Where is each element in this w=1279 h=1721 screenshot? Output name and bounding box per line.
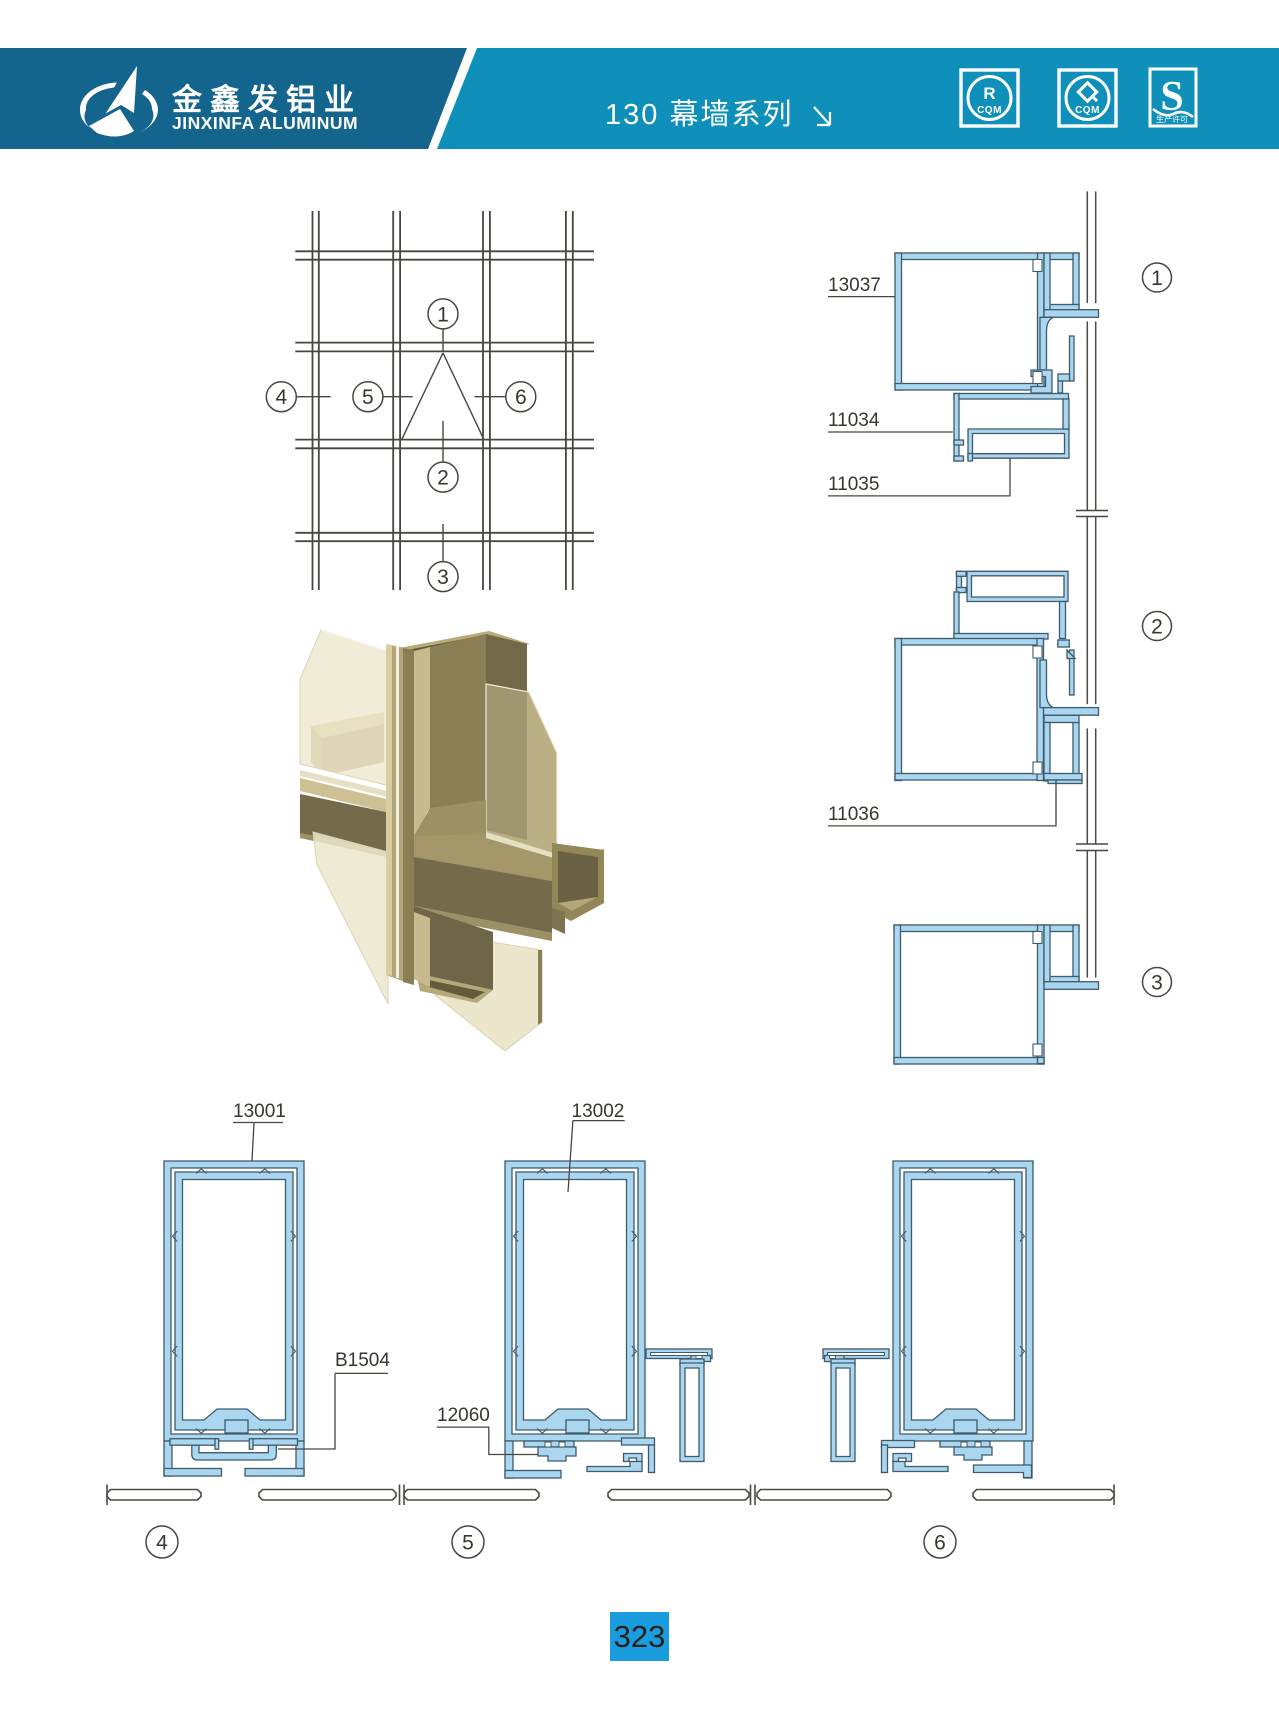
svg-text:11035: 11035 xyxy=(828,474,879,495)
svg-text:323: 323 xyxy=(614,1619,666,1654)
svg-text:4: 4 xyxy=(275,386,287,409)
svg-text:CQM: CQM xyxy=(1075,105,1100,116)
svg-text:2: 2 xyxy=(437,467,449,490)
svg-text:R: R xyxy=(983,84,995,103)
svg-text:5: 5 xyxy=(362,386,374,409)
svg-text:金鑫发铝业: 金鑫发铝业 xyxy=(171,83,362,117)
svg-text:3: 3 xyxy=(437,566,449,589)
svg-text:6: 6 xyxy=(515,386,527,409)
svg-text:6: 6 xyxy=(934,1532,946,1555)
svg-text:4: 4 xyxy=(156,1532,168,1555)
svg-text:11034: 11034 xyxy=(828,410,880,431)
svg-text:12060: 12060 xyxy=(437,1405,490,1426)
svg-text:3: 3 xyxy=(1151,972,1163,995)
svg-text:2: 2 xyxy=(1151,616,1163,639)
svg-text:5: 5 xyxy=(462,1532,474,1555)
svg-text:13001: 13001 xyxy=(233,1101,286,1122)
svg-text:11036: 11036 xyxy=(828,804,879,825)
svg-text:13037: 13037 xyxy=(828,275,881,296)
svg-text:CQM: CQM xyxy=(977,105,1002,116)
svg-text:1: 1 xyxy=(437,303,449,326)
svg-text:生产许可: 生产许可 xyxy=(1156,114,1188,124)
svg-text:130 幕墙系列: 130 幕墙系列 xyxy=(605,98,793,131)
svg-text:13002: 13002 xyxy=(572,1101,625,1122)
svg-text:1: 1 xyxy=(1151,267,1163,290)
svg-text:B1504: B1504 xyxy=(335,1350,390,1371)
svg-text:JINXINFA ALUMINUM: JINXINFA ALUMINUM xyxy=(172,113,358,133)
